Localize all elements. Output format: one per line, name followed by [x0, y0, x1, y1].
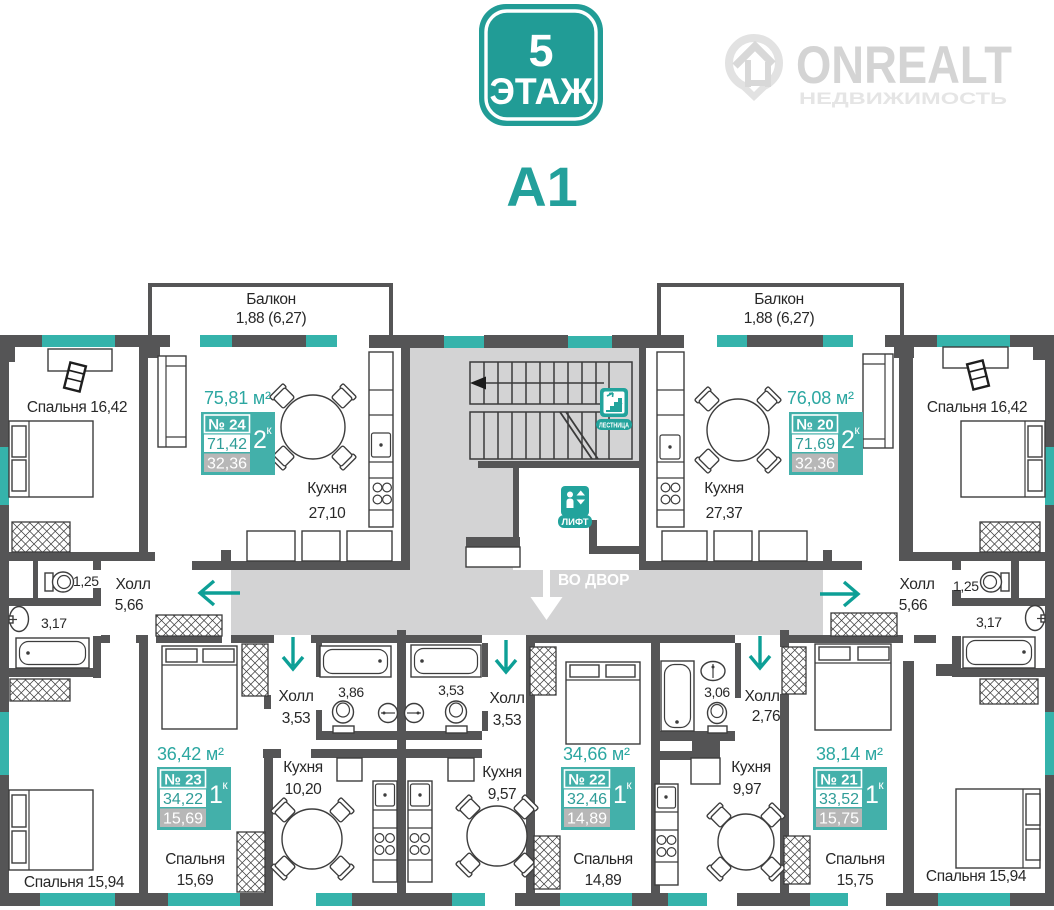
svg-text:Спальня 15,94: Спальня 15,94 [926, 868, 1027, 885]
svg-text:15,75: 15,75 [837, 872, 874, 889]
svg-text:71,69: 71,69 [795, 436, 835, 453]
svg-text:к: к [222, 778, 228, 792]
svg-text:Балкон: Балкон [754, 291, 804, 308]
svg-text:к: к [626, 778, 632, 792]
svg-text:Холл: Холл [490, 690, 525, 707]
svg-text:14,89: 14,89 [567, 811, 607, 828]
svg-text:5,66: 5,66 [115, 597, 144, 614]
svg-text:14,89: 14,89 [585, 872, 622, 889]
svg-text:Спальня 16,42: Спальня 16,42 [927, 399, 1027, 416]
svg-text:к: к [854, 423, 860, 437]
svg-text:Балкон: Балкон [246, 291, 296, 308]
svg-text:Кухня: Кухня [482, 764, 521, 781]
svg-text:3,53: 3,53 [282, 710, 311, 727]
svg-text:1,88 (6,27): 1,88 (6,27) [236, 310, 307, 327]
svg-text:Спальня 16,42: Спальня 16,42 [27, 399, 127, 416]
svg-text:Холл: Холл [900, 576, 935, 593]
svg-text:2,76: 2,76 [752, 708, 781, 725]
svg-text:№ 21: № 21 [820, 772, 858, 789]
svg-text:3,86: 3,86 [338, 684, 364, 700]
svg-text:5,66: 5,66 [899, 597, 928, 614]
svg-text:32,36: 32,36 [795, 456, 835, 473]
svg-text:1: 1 [865, 781, 879, 809]
svg-text:76,08 м²: 76,08 м² [787, 388, 854, 408]
svg-text:3,53: 3,53 [438, 682, 464, 698]
svg-text:1: 1 [613, 781, 627, 809]
svg-text:15,75: 15,75 [819, 811, 859, 828]
svg-text:Холл: Холл [745, 688, 780, 705]
svg-text:9,97: 9,97 [733, 781, 762, 798]
svg-text:27,37: 27,37 [706, 505, 743, 522]
svg-text:38,14 м²: 38,14 м² [816, 744, 883, 764]
svg-text:5: 5 [528, 25, 553, 76]
svg-text:№ 24: № 24 [208, 417, 246, 434]
svg-text:№ 22: № 22 [568, 772, 606, 789]
svg-text:15,69: 15,69 [177, 872, 214, 889]
svg-text:Кухня: Кухня [731, 759, 770, 776]
svg-text:3,17: 3,17 [41, 615, 67, 631]
svg-text:ЛЕСТНИЦА: ЛЕСТНИЦА [599, 423, 629, 430]
svg-text:ЭТАЖ: ЭТАЖ [490, 71, 594, 112]
svg-text:ЛИФТ: ЛИФТ [561, 517, 588, 528]
svg-text:33,52: 33,52 [819, 791, 859, 808]
svg-text:ONREALT: ONREALT [796, 36, 1012, 95]
svg-text:Кухня: Кухня [283, 759, 322, 776]
svg-text:Спальня: Спальня [825, 851, 884, 868]
svg-text:№ 23: № 23 [164, 772, 202, 789]
svg-text:2: 2 [253, 426, 267, 454]
svg-text:Холл: Холл [116, 576, 151, 593]
svg-text:НЕДВИЖИМОСТЬ: НЕДВИЖИМОСТЬ [799, 89, 1007, 108]
svg-text:ВО ДВОР: ВО ДВОР [558, 572, 629, 589]
svg-text:3,06: 3,06 [704, 684, 730, 700]
svg-text:1,25: 1,25 [73, 573, 99, 589]
svg-text:34,22: 34,22 [163, 791, 203, 808]
svg-text:27,10: 27,10 [309, 505, 347, 522]
svg-text:Спальня: Спальня [573, 851, 632, 868]
svg-text:32,36: 32,36 [207, 456, 247, 473]
svg-text:Спальня: Спальня [165, 851, 224, 868]
svg-text:71,42: 71,42 [207, 436, 247, 453]
svg-text:к: к [878, 778, 884, 792]
svg-text:А1: А1 [506, 155, 578, 218]
svg-text:32,46: 32,46 [567, 791, 607, 808]
svg-text:1,88 (6,27): 1,88 (6,27) [744, 310, 815, 327]
svg-text:к: к [266, 423, 272, 437]
svg-text:№ 20: № 20 [796, 417, 834, 434]
svg-text:Спальня 15,94: Спальня 15,94 [24, 874, 125, 891]
svg-text:1,25: 1,25 [953, 578, 979, 594]
svg-text:34,66 м²: 34,66 м² [563, 744, 630, 764]
svg-text:36,42 м²: 36,42 м² [157, 744, 224, 764]
svg-text:Холл: Холл [279, 688, 314, 705]
svg-text:Кухня: Кухня [307, 480, 346, 497]
svg-text:Кухня: Кухня [704, 480, 743, 497]
svg-text:2: 2 [841, 426, 855, 454]
svg-text:3,53: 3,53 [493, 712, 522, 729]
svg-text:15,69: 15,69 [163, 811, 203, 828]
svg-text:1: 1 [209, 781, 223, 809]
svg-text:9,57: 9,57 [488, 786, 517, 803]
svg-text:3,17: 3,17 [976, 614, 1002, 630]
svg-text:10,20: 10,20 [285, 781, 323, 798]
svg-text:75,81 м²: 75,81 м² [204, 388, 271, 408]
